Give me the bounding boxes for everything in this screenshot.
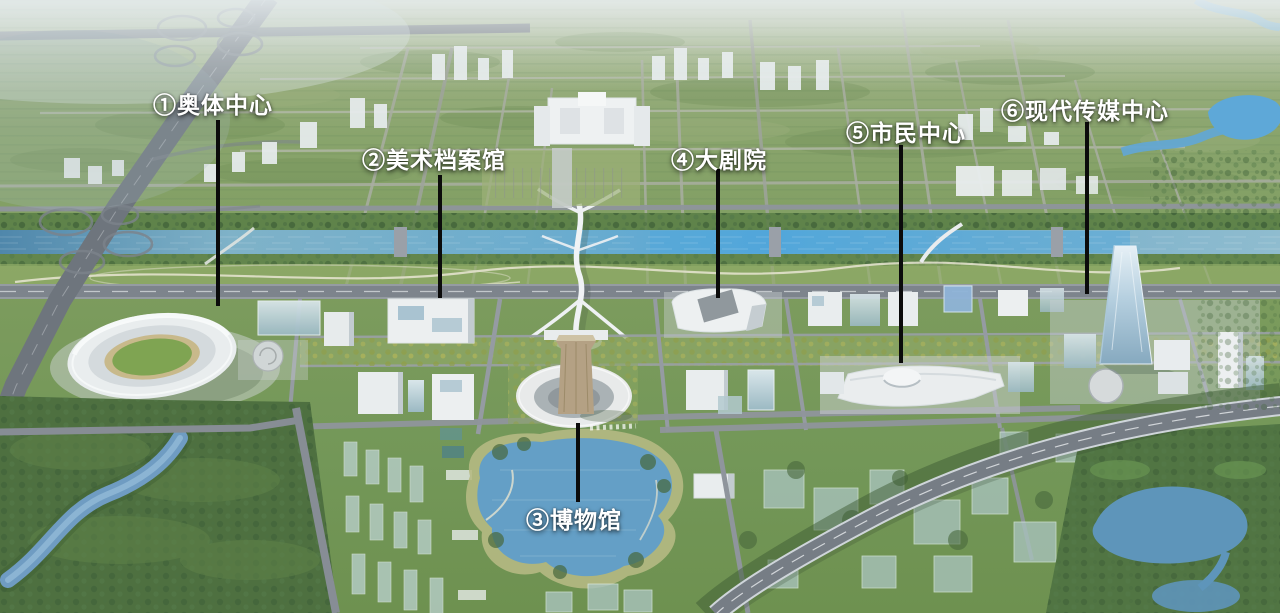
landmark-label-civic-center: ⑤市民中心 bbox=[846, 114, 966, 148]
landmark-label-modern-media-center: ⑥现代传媒中心 bbox=[1001, 92, 1169, 126]
landmark-label-museum: ③博物馆 bbox=[526, 501, 622, 535]
callout-line-grand-theater bbox=[716, 169, 720, 298]
callout-line-modern-media-center bbox=[1085, 122, 1089, 294]
planning-aerial-view: ①奥体中心 ②美术档案馆 ③博物馆 ④大剧院 ⑤市民中心 ⑥现代传媒中心 bbox=[0, 0, 1280, 613]
landmark-label-art-archives: ②美术档案馆 bbox=[362, 141, 506, 175]
landmark-label-grand-theater: ④大剧院 bbox=[671, 141, 767, 175]
landmark-label-olympic-sports-center: ①奥体中心 bbox=[153, 86, 273, 120]
callout-line-art-archives bbox=[438, 175, 442, 298]
callout-line-olympic-sports-center bbox=[216, 120, 220, 306]
callout-line-museum bbox=[576, 423, 580, 502]
callout-line-civic-center bbox=[899, 145, 903, 363]
